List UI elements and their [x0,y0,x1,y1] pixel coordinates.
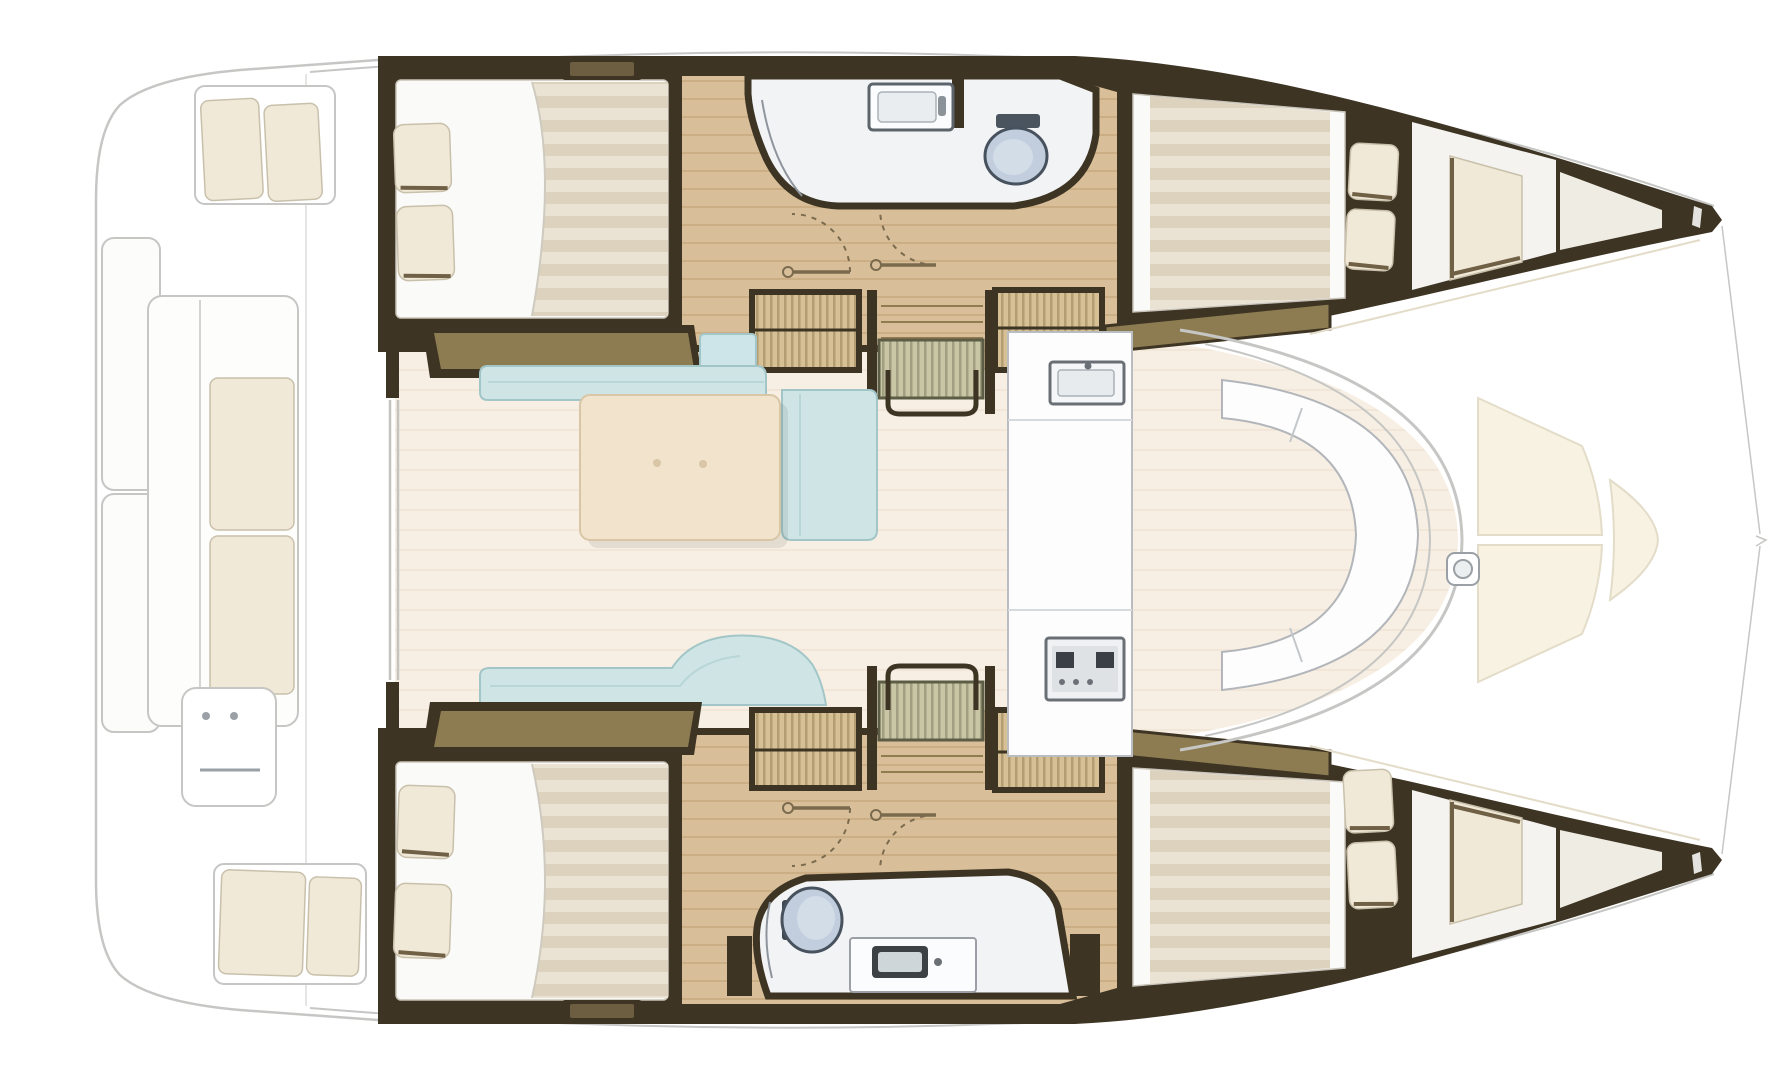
aft-sideboard-starboard-top [434,711,694,747]
cockpit-cushion [200,98,263,201]
pillow [1343,769,1394,833]
bathroom-post [727,936,752,996]
helm-console [182,688,276,806]
pillow [1347,841,1398,909]
stove-knob [1087,679,1093,685]
pillow [1344,209,1395,271]
bath-sink-basin [878,92,936,122]
helm-dial [202,712,210,720]
aft-cabin-starboard-bed [393,762,668,1000]
bathroom-post [1070,934,1100,996]
bath-sink-basin-inner [878,952,922,972]
stove-knob [1059,679,1065,685]
stove-burner [1096,652,1114,668]
stove-burner [1056,652,1074,668]
pillow-shadow [1354,902,1394,906]
pillow-shadow [404,274,451,278]
helm-dial [230,712,238,720]
companionway-steps [879,682,983,740]
mattress [1150,770,1330,984]
forestay-line [1722,226,1766,854]
stair-rail [985,666,995,790]
floorplan-svg [0,0,1792,1080]
faucet [1085,363,1092,370]
saloon-aft-wall [386,682,399,756]
foredeck-panel [1478,398,1602,535]
roof-hatch-inner [570,62,634,76]
cockpit-cushion [218,870,306,977]
aft-sideboard-port-top [434,333,694,369]
cockpit-cushion [264,103,323,202]
pillow [397,785,455,859]
table-fitting [653,459,661,467]
table-fitting [699,460,707,468]
pillow [393,883,452,959]
aft-cabin-port-bed [393,80,668,318]
catamaran-floorplan-page [0,0,1792,1080]
pillow-shadow [401,186,448,190]
companionway-steps [879,340,983,398]
faucet [934,958,942,966]
bathroom-port [748,76,1096,206]
pillow [396,205,455,281]
pillow-shadow [1350,826,1390,830]
toilet-seat [797,896,835,940]
pillow [393,123,451,193]
galley [1008,332,1132,756]
toilet-tank [996,114,1040,128]
galley-sink-basin [1058,370,1114,396]
cockpit-cushion [306,877,361,977]
roof-hatch-inner [570,1004,634,1018]
bathroom-starboard [727,872,1100,996]
saloon-table [580,395,780,540]
foredeck-nose [1610,480,1658,600]
stair-rail [867,666,877,790]
foredeck-panel [1478,545,1602,682]
cockpit-sliding-door [390,400,398,680]
cockpit-cushion [210,536,294,694]
cockpit-cushion [210,378,294,530]
anchor-fitting-ring [1454,560,1472,578]
stair-rail [985,290,995,414]
mattress [1150,96,1330,310]
saloon-sofa-chaise [782,390,877,540]
faucet [938,96,946,116]
saloon-aft-wall [386,324,399,398]
toilet-seat [993,139,1033,175]
stove-knob [1073,679,1079,685]
